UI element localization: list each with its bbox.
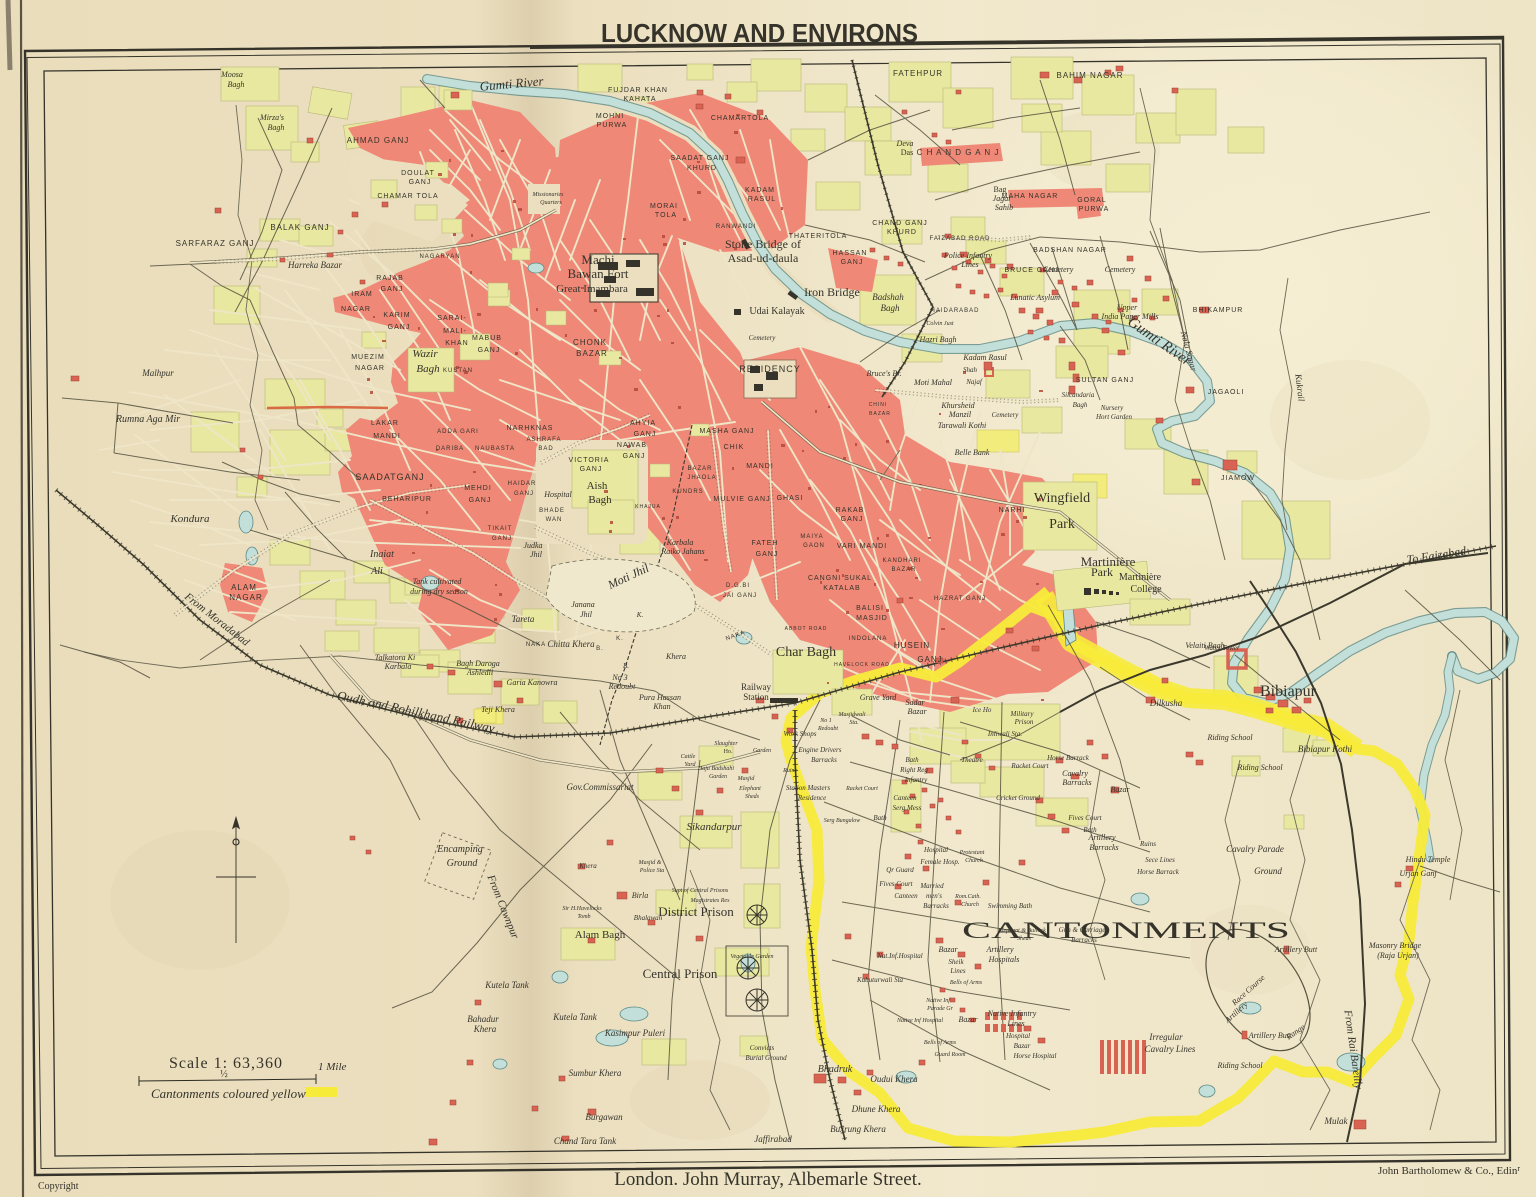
svg-text:THATERITOLA: THATERITOLA xyxy=(789,233,848,240)
svg-text:Native Infantry: Native Infantry xyxy=(987,1009,1037,1018)
svg-text:men's: men's xyxy=(926,892,942,900)
svg-text:Ground: Ground xyxy=(1254,866,1282,876)
svg-text:Dhune Khera: Dhune Khera xyxy=(851,1104,901,1114)
svg-text:LUCKNOW AND ENVIRONS: LUCKNOW AND ENVIRONS xyxy=(601,18,918,48)
svg-text:1 Mile: 1 Mile xyxy=(318,1061,347,1073)
svg-text:Tank cultivated: Tank cultivated xyxy=(413,577,463,586)
svg-text:NAGAR: NAGAR xyxy=(229,593,262,602)
svg-text:Malhpur: Malhpur xyxy=(141,368,174,378)
svg-text:NAUBASTA: NAUBASTA xyxy=(475,446,515,452)
svg-text:Church: Church xyxy=(965,858,983,864)
svg-text:INDOLANA: INDOLANA xyxy=(849,636,888,642)
svg-text:PURWA: PURWA xyxy=(597,122,628,129)
svg-text:CHAMAR TOLA: CHAMAR TOLA xyxy=(377,193,438,200)
svg-text:GANJ: GANJ xyxy=(381,286,404,293)
svg-text:Convicts: Convicts xyxy=(750,1044,775,1052)
svg-text:Cricket Ground: Cricket Ground xyxy=(996,794,1040,802)
svg-text:NAGAR: NAGAR xyxy=(355,365,385,372)
svg-text:No 1: No 1 xyxy=(819,718,832,724)
svg-text:HAZRAT GANJ: HAZRAT GANJ xyxy=(934,596,986,602)
svg-text:GHASI: GHASI xyxy=(777,495,804,502)
svg-text:Lines: Lines xyxy=(1006,1019,1024,1028)
svg-text:Mirza's: Mirza's xyxy=(259,113,284,122)
svg-text:Bibiapur Kothi: Bibiapur Kothi xyxy=(1298,744,1353,754)
svg-text:Badshah: Badshah xyxy=(872,292,904,302)
svg-text:HAVELOCK ROAD: HAVELOCK ROAD xyxy=(834,662,890,668)
svg-text:½: ½ xyxy=(220,1069,228,1080)
svg-text:Bagh: Bagh xyxy=(416,363,440,375)
svg-text:HAIDARABAD: HAIDARABAD xyxy=(930,308,979,314)
svg-text:Masonry Bridge: Masonry Bridge xyxy=(1368,941,1422,950)
svg-text:Horse Barrack: Horse Barrack xyxy=(1136,868,1180,876)
svg-text:Kadam Rasul: Kadam Rasul xyxy=(962,353,1007,362)
svg-text:KADAM: KADAM xyxy=(745,187,775,194)
svg-text:Bagh: Bagh xyxy=(1073,401,1088,409)
svg-text:Raiko Jahans: Raiko Jahans xyxy=(660,547,704,556)
svg-text:Rumna Aga Mir: Rumna Aga Mir xyxy=(115,414,180,425)
svg-text:NARHKNAS: NARHKNAS xyxy=(507,425,554,432)
svg-text:Riding School: Riding School xyxy=(1236,763,1283,772)
svg-text:Kondura: Kondura xyxy=(169,513,210,525)
svg-text:Machi: Machi xyxy=(581,252,615,267)
svg-text:SULTAN GANJ: SULTAN GANJ xyxy=(1076,377,1134,384)
svg-text:Deva: Deva xyxy=(896,139,914,148)
svg-text:BAD: BAD xyxy=(538,446,553,452)
svg-text:Yard: Yard xyxy=(685,762,697,768)
svg-text:Sheik: Sheik xyxy=(948,958,964,966)
svg-text:KUSTAN: KUSTAN xyxy=(443,368,473,374)
svg-text:Martinière: Martinière xyxy=(1119,572,1162,583)
svg-text:KHAN: KHAN xyxy=(445,340,468,347)
svg-text:Fives Court: Fives Court xyxy=(878,880,913,888)
svg-text:Belle Bank: Belle Bank xyxy=(955,448,990,457)
svg-text:Hindu Temple: Hindu Temple xyxy=(1405,855,1451,864)
svg-text:Das: Das xyxy=(901,148,913,157)
svg-text:Hospitals: Hospitals xyxy=(988,955,1020,964)
svg-text:KHURD: KHURD xyxy=(887,229,917,236)
svg-text:CHONK: CHONK xyxy=(573,338,607,347)
svg-text:C H A N D G A N J: C H A N D G A N J xyxy=(917,148,1000,157)
svg-text:Bawan Fort: Bawan Fort xyxy=(567,266,628,281)
svg-text:Barracks: Barracks xyxy=(1062,778,1091,787)
svg-text:Female Hosp.: Female Hosp. xyxy=(919,858,960,866)
svg-text:Racket Court: Racket Court xyxy=(845,786,878,792)
svg-text:Birla: Birla xyxy=(632,891,648,900)
svg-text:Barracks: Barracks xyxy=(811,756,837,764)
svg-text:Police Sta: Police Sta xyxy=(639,868,665,874)
svg-text:JHAOLA: JHAOLA xyxy=(687,475,716,481)
svg-text:Hospital: Hospital xyxy=(923,846,948,854)
svg-text:BAZAR: BAZAR xyxy=(687,466,712,472)
svg-text:Khan: Khan xyxy=(652,702,670,711)
svg-text:Najaf: Najaf xyxy=(965,378,983,386)
svg-text:NAWAB: NAWAB xyxy=(617,442,647,449)
svg-text:JIAMOW: JIAMOW xyxy=(1221,475,1255,482)
svg-text:KHURD: KHURD xyxy=(687,165,717,172)
svg-text:Supt of Central Prisons: Supt of Central Prisons xyxy=(672,887,729,894)
svg-text:DARIBA: DARIBA xyxy=(436,446,464,452)
svg-text:Horse Barrack: Horse Barrack xyxy=(1046,754,1090,762)
svg-text:GANJ: GANJ xyxy=(841,259,864,266)
svg-text:Bells of Arms: Bells of Arms xyxy=(924,1039,957,1046)
svg-text:ABBOT ROAD: ABBOT ROAD xyxy=(785,626,828,632)
svg-text:(Raja Urjan): (Raja Urjan) xyxy=(1377,951,1419,960)
svg-text:Karbala: Karbala xyxy=(666,538,694,547)
svg-text:Artillery Butt: Artillery Butt xyxy=(1274,945,1318,954)
svg-text:Infantry: Infantry xyxy=(904,776,928,784)
svg-text:GANJ: GANJ xyxy=(623,453,646,460)
svg-text:VARI MANDI: VARI MANDI xyxy=(837,543,887,550)
svg-text:AHMAD GANJ: AHMAD GANJ xyxy=(347,136,409,145)
svg-text:Sir H.Havelocks: Sir H.Havelocks xyxy=(562,906,602,912)
svg-text:Bagh: Bagh xyxy=(268,123,285,132)
svg-text:Ruins: Ruins xyxy=(1139,840,1156,848)
svg-text:Copyright: Copyright xyxy=(38,1181,79,1192)
svg-text:Bagh: Bagh xyxy=(228,80,245,89)
svg-text:Bibiapur: Bibiapur xyxy=(1260,683,1317,700)
svg-text:Moti Mahal: Moti Mahal xyxy=(913,378,953,387)
svg-text:Fives Court: Fives Court xyxy=(1067,814,1102,822)
svg-text:Canteen: Canteen xyxy=(894,892,918,900)
svg-text:GANJ: GANJ xyxy=(514,491,534,497)
svg-text:FAIZABAD ROAD: FAIZABAD ROAD xyxy=(929,236,990,242)
svg-text:MAIYA: MAIYA xyxy=(800,534,823,540)
svg-text:Bazar: Bazar xyxy=(958,1015,978,1024)
svg-text:District Prison: District Prison xyxy=(658,904,734,919)
svg-text:Swimming Bath: Swimming Bath xyxy=(988,902,1033,910)
svg-text:MUEZIM: MUEZIM xyxy=(351,354,385,361)
svg-text:GAON: GAON xyxy=(803,543,825,549)
svg-text:Talkatora Ki: Talkatora Ki xyxy=(375,653,415,662)
svg-text:Cavalry: Cavalry xyxy=(1062,769,1088,778)
svg-text:Artillery: Artillery xyxy=(1087,833,1116,842)
svg-text:NAKA: NAKA xyxy=(526,642,546,648)
svg-text:Serg.Mess: Serg.Mess xyxy=(893,804,922,812)
svg-text:Cemetery: Cemetery xyxy=(1043,265,1074,274)
svg-text:Residence: Residence xyxy=(797,794,826,802)
svg-text:Theatre: Theatre xyxy=(961,756,983,764)
svg-text:Asad-ud-daula: Asad-ud-daula xyxy=(728,251,799,265)
svg-text:BEHARIPUR: BEHARIPUR xyxy=(382,496,432,503)
svg-text:Janana: Janana xyxy=(571,600,595,609)
svg-text:Sadar: Sadar xyxy=(905,698,925,707)
svg-text:No 3: No 3 xyxy=(611,673,627,682)
svg-text:CANGNI SUKAL: CANGNI SUKAL xyxy=(808,575,872,582)
svg-text:MORAI: MORAI xyxy=(650,203,678,210)
svg-text:JAGAOLI: JAGAOLI xyxy=(1208,389,1245,396)
svg-text:Inliwali Sta.: Inliwali Sta. xyxy=(987,730,1022,738)
svg-text:Cemetery: Cemetery xyxy=(749,334,777,342)
svg-text:Military: Military xyxy=(1010,710,1035,718)
svg-text:Tarawali Kothi: Tarawali Kothi xyxy=(938,421,986,430)
svg-text:AHYIA: AHYIA xyxy=(630,420,656,427)
svg-text:GANJ: GANJ xyxy=(756,551,779,558)
svg-text:Station: Station xyxy=(743,692,769,702)
svg-text:D.G.BI: D.G.BI xyxy=(726,583,750,589)
svg-text:Garden: Garden xyxy=(753,748,771,754)
svg-text:Jhil: Jhil xyxy=(580,610,593,619)
svg-text:Cemetery: Cemetery xyxy=(1105,265,1136,274)
svg-text:Rom.Cath.: Rom.Cath. xyxy=(954,894,981,900)
svg-text:Station Masters: Station Masters xyxy=(786,784,830,792)
svg-text:Karbala: Karbala xyxy=(384,662,412,671)
svg-text:Chand Tara Tank: Chand Tara Tank xyxy=(554,1136,617,1146)
svg-text:Burial Ground: Burial Ground xyxy=(745,1054,787,1062)
svg-text:Manzil: Manzil xyxy=(948,410,972,419)
svg-text:SARFARAZ GANJ: SARFARAZ GANJ xyxy=(176,239,255,248)
svg-text:IRAM: IRAM xyxy=(351,291,373,298)
svg-text:BALAK GANJ: BALAK GANJ xyxy=(270,223,329,232)
svg-text:HUSEIN: HUSEIN xyxy=(894,641,930,650)
svg-text:PURWA: PURWA xyxy=(1079,206,1110,213)
svg-text:Slaughter: Slaughter xyxy=(714,741,738,747)
svg-text:Ground: Ground xyxy=(447,858,479,869)
svg-text:Lines: Lines xyxy=(949,967,965,975)
svg-text:India Paper Mills: India Paper Mills xyxy=(1101,312,1159,321)
svg-text:Iron Bridge: Iron Bridge xyxy=(804,285,860,299)
svg-text:LAKAR: LAKAR xyxy=(371,420,399,427)
svg-text:Bazar: Bazar xyxy=(1014,1042,1031,1050)
svg-text:Central Prison: Central Prison xyxy=(643,966,718,981)
svg-text:Cattle: Cattle xyxy=(681,754,696,760)
svg-text:MABUB: MABUB xyxy=(472,335,502,342)
svg-text:SAADAT GANJ: SAADAT GANJ xyxy=(671,155,730,162)
svg-text:Hazri Bagh: Hazri Bagh xyxy=(918,335,956,344)
svg-text:GANJ: GANJ xyxy=(478,347,501,354)
svg-text:Lines: Lines xyxy=(960,260,978,269)
svg-text:Magistrates Res: Magistrates Res xyxy=(690,898,730,904)
svg-text:RAKAB: RAKAB xyxy=(836,507,865,514)
svg-text:Nursery: Nursery xyxy=(1100,404,1124,412)
svg-text:Aish: Aish xyxy=(587,480,608,492)
svg-text:WAN: WAN xyxy=(546,517,563,523)
svg-text:Oudui Khera: Oudui Khera xyxy=(870,1074,918,1084)
svg-text:Bagh: Bagh xyxy=(588,494,612,506)
svg-text:Garden: Garden xyxy=(709,774,727,780)
svg-text:RANWANDI: RANWANDI xyxy=(716,224,756,230)
svg-text:DOULAT: DOULAT xyxy=(401,170,435,177)
svg-text:Canteen: Canteen xyxy=(893,794,917,802)
svg-text:HASSAN: HASSAN xyxy=(833,250,868,257)
svg-text:GANJ: GANJ xyxy=(409,179,432,186)
svg-text:GORAL: GORAL xyxy=(1077,197,1107,204)
svg-text:Moosa: Moosa xyxy=(220,70,243,79)
svg-text:Bhalawan: Bhalawan xyxy=(634,914,663,922)
svg-text:BAZAR: BAZAR xyxy=(869,411,891,417)
svg-text:B.: B. xyxy=(623,662,629,670)
svg-text:Ashledli: Ashledli xyxy=(466,668,493,677)
svg-text:Native Inf: Native Inf xyxy=(925,997,951,1004)
svg-text:Khursheid: Khursheid xyxy=(940,401,975,410)
svg-text:Redoubt: Redoubt xyxy=(817,726,838,732)
svg-text:College: College xyxy=(1130,584,1162,595)
svg-text:Harreka Bazar: Harreka Bazar xyxy=(287,260,342,270)
svg-text:Bazar: Bazar xyxy=(907,707,927,716)
svg-text:B.: B. xyxy=(596,646,604,652)
svg-text:Elephant: Elephant xyxy=(738,786,761,792)
svg-text:BAZAR: BAZAR xyxy=(576,349,608,358)
svg-text:GANJ: GANJ xyxy=(492,536,512,542)
svg-text:Haja Badshahi: Haja Badshahi xyxy=(697,766,735,772)
svg-text:Hospital: Hospital xyxy=(1005,1032,1030,1040)
svg-text:Khera: Khera xyxy=(578,862,597,870)
svg-text:Sahib: Sahib xyxy=(995,203,1013,212)
svg-text:Bagh: Bagh xyxy=(881,303,900,313)
svg-text:Tomb: Tomb xyxy=(577,914,590,920)
svg-text:Colvin Just: Colvin Just xyxy=(926,321,953,327)
svg-text:Missionaries: Missionaries xyxy=(531,192,564,198)
svg-text:RASUL: RASUL xyxy=(748,196,776,203)
svg-text:Hort Garden: Hort Garden xyxy=(1095,413,1133,421)
svg-text:Judka: Judka xyxy=(523,541,542,550)
svg-text:SAADATGANJ: SAADATGANJ xyxy=(355,472,424,482)
svg-text:Nat.Inf.Hospital: Nat.Inf.Hospital xyxy=(876,952,923,960)
svg-text:VICTORIA: VICTORIA xyxy=(569,457,610,464)
svg-text:John Bartholomew & Co., Edinr: John Bartholomew & Co., Edinr xyxy=(1378,1164,1520,1177)
svg-text:Sece Lines: Sece Lines xyxy=(1145,856,1175,864)
svg-text:KARIM: KARIM xyxy=(383,312,410,319)
svg-text:Quarters: Quarters xyxy=(540,200,562,206)
svg-text:Encamping: Encamping xyxy=(436,844,483,855)
svg-text:Khera: Khera xyxy=(473,1024,497,1034)
svg-text:Pura Hassan: Pura Hassan xyxy=(638,693,681,702)
svg-text:Cantonments coloured yellow: Cantonments coloured yellow xyxy=(151,1086,306,1101)
svg-text:TIKAIT: TIKAIT xyxy=(488,526,513,532)
svg-text:MANDI: MANDI xyxy=(373,433,401,440)
svg-text:Barracks: Barracks xyxy=(923,902,949,910)
svg-text:BADSHAN NAGAR: BADSHAN NAGAR xyxy=(1033,247,1107,254)
svg-text:Protestant: Protestant xyxy=(959,850,985,856)
svg-text:GANJ: GANJ xyxy=(388,324,411,331)
svg-text:Jagar: Jagar xyxy=(993,194,1013,203)
svg-text:Alam Bagh: Alam Bagh xyxy=(575,929,626,941)
svg-text:Masjidwali: Masjidwali xyxy=(837,712,865,718)
svg-text:Grave Yard: Grave Yard xyxy=(860,693,898,702)
svg-text:CHAMARTOLA: CHAMARTOLA xyxy=(711,115,769,122)
svg-text:KANDHARI: KANDHARI xyxy=(882,558,921,564)
svg-text:JAI GANJ: JAI GANJ xyxy=(723,593,757,599)
svg-text:Gov.Commissariat: Gov.Commissariat xyxy=(566,782,634,792)
svg-text:Sheds: Sheds xyxy=(745,794,760,800)
svg-text:Police Infantry: Police Infantry xyxy=(943,251,993,260)
svg-text:Upper: Upper xyxy=(1117,303,1138,312)
svg-text:Shah: Shah xyxy=(963,366,978,374)
svg-text:Char Bagh: Char Bagh xyxy=(776,645,836,660)
svg-text:Kubuturwali Sta: Kubuturwali Sta xyxy=(856,976,904,984)
svg-text:Jaffirabad: Jaffirabad xyxy=(754,1134,792,1144)
svg-text:during dry season: during dry season xyxy=(410,587,468,596)
svg-text:Inaiat: Inaiat xyxy=(369,549,394,560)
svg-text:MALI-: MALI- xyxy=(443,328,467,335)
svg-text:Khera: Khera xyxy=(665,652,686,661)
svg-text:GANJ: GANJ xyxy=(634,431,657,438)
svg-text:HAIDAR: HAIDAR xyxy=(508,481,537,487)
svg-text:Cavalry Lines: Cavalry Lines xyxy=(1145,1044,1196,1054)
svg-text:ALAM: ALAM xyxy=(231,583,257,592)
svg-text:Sikandarpur: Sikandarpur xyxy=(687,821,743,833)
svg-text:Water Tower: Water Tower xyxy=(1204,644,1240,652)
svg-text:Bells of Arms: Bells of Arms xyxy=(950,979,983,986)
svg-text:K.: K. xyxy=(636,611,644,619)
svg-text:BAHIM NAGAR: BAHIM NAGAR xyxy=(1056,71,1123,80)
svg-text:Native Inf Hospital: Native Inf Hospital xyxy=(896,1017,943,1024)
svg-text:Bazar: Bazar xyxy=(1110,785,1130,794)
svg-text:MULVIE GANJ: MULVIE GANJ xyxy=(713,496,770,503)
svg-text:MEHDI: MEHDI xyxy=(464,485,492,492)
svg-text:Guard Room: Guard Room xyxy=(935,1052,967,1058)
svg-text:Kutela Tank: Kutela Tank xyxy=(484,980,529,990)
svg-text:Masjid &: Masjid & xyxy=(638,860,662,866)
svg-text:Sheds: Sheds xyxy=(1017,936,1032,942)
svg-text:CHINI: CHINI xyxy=(869,402,888,408)
svg-text:Married: Married xyxy=(919,882,944,890)
svg-text:Barracks: Barracks xyxy=(1089,843,1118,852)
svg-text:Church: Church xyxy=(961,902,979,908)
svg-text:NARHI: NARHI xyxy=(999,507,1026,514)
svg-text:Jhil: Jhil xyxy=(530,550,543,559)
svg-text:ADDA GARI: ADDA GARI xyxy=(437,429,479,435)
svg-text:Railway: Railway xyxy=(741,682,771,692)
svg-text:KUNDRS: KUNDRS xyxy=(672,489,703,495)
svg-text:Bahadur: Bahadur xyxy=(467,1014,499,1024)
svg-text:MOHNI: MOHNI xyxy=(596,113,624,120)
svg-text:Wingfield: Wingfield xyxy=(1034,491,1090,506)
svg-text:Park: Park xyxy=(1049,517,1075,532)
svg-text:Ice Ho: Ice Ho xyxy=(972,706,992,714)
svg-text:BHIKAMPUR: BHIKAMPUR xyxy=(1193,307,1244,314)
svg-text:CHAND GANJ: CHAND GANJ xyxy=(872,220,928,227)
svg-text:Great Imambara: Great Imambara xyxy=(556,283,628,295)
svg-text:Lunatic Asylum: Lunatic Asylum xyxy=(1009,293,1060,302)
svg-text:Park: Park xyxy=(1091,565,1113,579)
svg-text:Bath: Bath xyxy=(905,756,919,764)
svg-text:Horse Hospital: Horse Hospital xyxy=(1013,1052,1057,1060)
svg-text:Cemetery: Cemetery xyxy=(992,411,1020,419)
svg-text:Garia Kanowra: Garia Kanowra xyxy=(507,678,558,687)
svg-text:London. John Murray, Albemarle: London. John Murray, Albemarle Street. xyxy=(614,1169,921,1190)
svg-text:Bruce's Br.: Bruce's Br. xyxy=(866,369,901,378)
svg-text:Artillery Butt: Artillery Butt xyxy=(1248,1031,1292,1040)
svg-text:Elephant & Bullock: Elephant & Bullock xyxy=(997,928,1046,934)
svg-text:ASHRAFA: ASHRAFA xyxy=(526,437,561,443)
svg-text:Buxrung Khera: Buxrung Khera xyxy=(830,1124,886,1134)
svg-text:TOLA: TOLA xyxy=(655,212,677,219)
svg-text:Bagh Daroga: Bagh Daroga xyxy=(456,659,499,668)
svg-text:Silcandaria: Silcandaria xyxy=(1062,391,1095,399)
svg-text:FUJDAR KHAN: FUJDAR KHAN xyxy=(608,87,668,94)
svg-text:Artillery: Artillery xyxy=(985,945,1014,954)
svg-text:Urjan Ganj: Urjan Ganj xyxy=(1399,869,1437,878)
svg-text:Right Reg: Right Reg xyxy=(899,766,928,774)
svg-text:Sumbur Khera: Sumbur Khera xyxy=(569,1068,622,1078)
svg-text:Sta.: Sta. xyxy=(849,720,858,726)
svg-text:Barracks: Barracks xyxy=(1071,936,1097,944)
svg-text:GANJ: GANJ xyxy=(580,466,603,473)
svg-text:KATALAB: KATALAB xyxy=(823,585,860,592)
svg-text:K.: K. xyxy=(616,636,624,642)
svg-text:Tareta: Tareta xyxy=(512,614,535,624)
svg-text:KHAJUA: KHAJUA xyxy=(635,504,661,510)
svg-text:FATEHPUR: FATEHPUR xyxy=(893,69,943,78)
svg-text:Gun & Carriage: Gun & Carriage xyxy=(1059,926,1106,934)
svg-text:Bhadruk: Bhadruk xyxy=(818,1064,853,1075)
svg-text:Redoubt: Redoubt xyxy=(608,682,636,691)
svg-text:BALISI: BALISI xyxy=(856,605,884,612)
svg-text:Ho.: Ho. xyxy=(724,749,733,755)
svg-text:Parade Gr: Parade Gr xyxy=(926,1006,953,1012)
svg-text:Mulak: Mulak xyxy=(1324,1116,1349,1126)
svg-text:FATEH: FATEH xyxy=(751,540,778,547)
